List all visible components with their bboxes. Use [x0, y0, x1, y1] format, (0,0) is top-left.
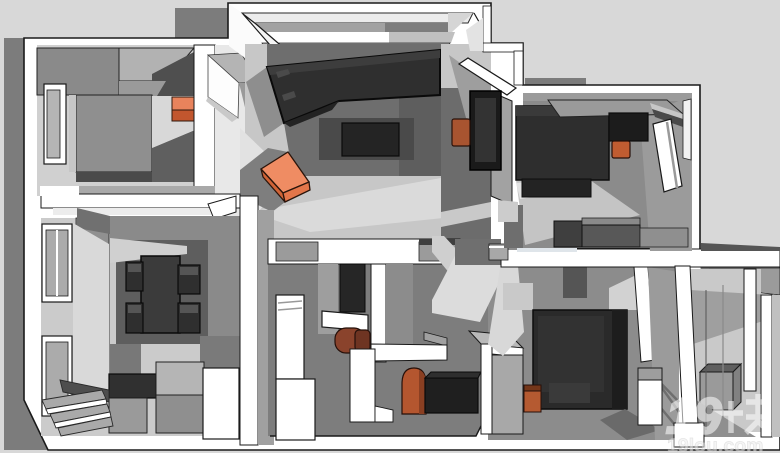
svg-text:19lou.com: 19lou.com	[667, 435, 763, 453]
